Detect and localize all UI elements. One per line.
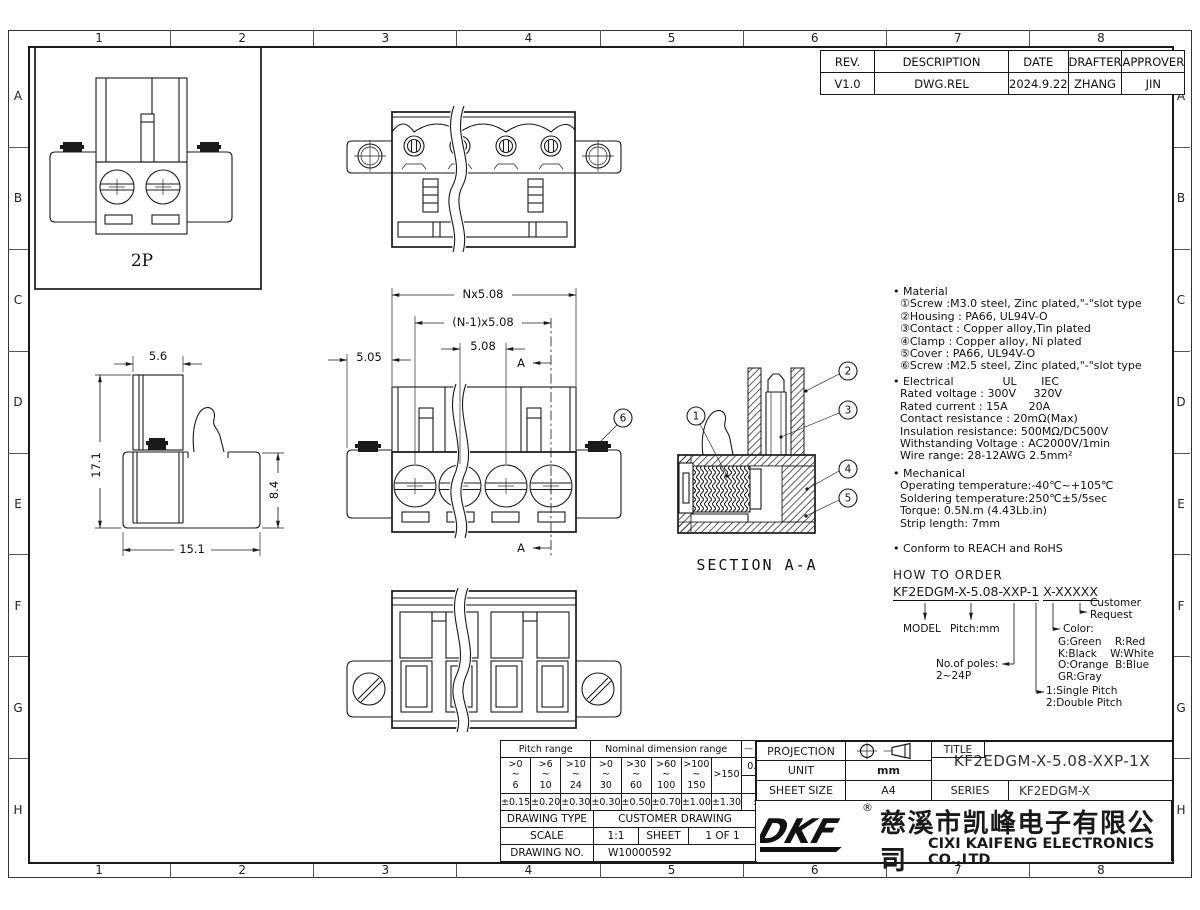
dim-body-depth: 15.1 <box>179 542 205 556</box>
order-customer-label: Customer Request <box>1090 598 1141 621</box>
order-color-label: Color: <box>1063 624 1094 636</box>
drawing-type-label: DRAWING TYPE <box>501 811 594 828</box>
svg-text:DKF: DKF <box>760 813 843 852</box>
first-angle-projection-icon <box>854 742 924 760</box>
drawing-no-label: DRAWING NO. <box>501 845 594 862</box>
poles-count-label: 2P <box>131 251 153 271</box>
balloon-1: 1 <box>693 411 700 423</box>
revision-row: V1.0 DWG.REL 2024.9.22 ZHANG JIN <box>821 73 1185 95</box>
nominal-range-header: Nominal dimension range <box>591 741 742 758</box>
description-header: DESCRIPTION <box>875 51 1009 73</box>
screw-holes-top <box>404 136 561 156</box>
order-code-model: KF2EDGM-X-5.08-XXP-1 <box>893 584 1039 601</box>
section-title: SECTION A-A <box>696 556 817 574</box>
pitch-range-1: >0 ~ 6 <box>501 758 531 794</box>
description-value: DWG.REL <box>875 73 1009 95</box>
how-to-order-title: HOW TO ORDER <box>893 568 1003 582</box>
nominal-range-2: >30 ~ 60 <box>621 758 651 794</box>
company-name-en: CIXI KAIFENG ELECTRONICS CO.,LTD <box>928 836 1171 868</box>
unit-label: UNIT <box>756 760 846 781</box>
electrical-notes: • Electrical UL IEC Rated voltage : 300V… <box>893 376 1110 463</box>
balloon-3: 3 <box>845 405 852 417</box>
nominal-tol-1: ±0.30 <box>591 794 621 811</box>
revision-header-row: REV. DESCRIPTION DATE DRAFTER APPROVER <box>821 51 1185 73</box>
sheet-size-value: A4 <box>845 780 932 801</box>
nominal-tol-5: ±1.30 <box>711 794 741 811</box>
compliance-note: • Conform to REACH and RoHS <box>893 543 1063 555</box>
drawing-type-value: CUSTOMER DRAWING <box>594 811 757 828</box>
drawing-sheet: 12345678 12345678 ABCDEFGH ABCDEFGH <box>0 0 1200 910</box>
order-pitch-type-label: 1:Single Pitch 2:Double Pitch <box>1046 686 1122 709</box>
rev-header: REV. <box>821 51 875 73</box>
order-pitch-label: Pitch:mm <box>950 624 1000 636</box>
scale-value: 1:1 <box>594 828 639 845</box>
revision-table: REV. DESCRIPTION DATE DRAFTER APPROVER V… <box>820 50 1185 95</box>
date-value: 2024.9.22 <box>1009 73 1069 95</box>
material-notes: • Material ①Screw :M3.0 steel, Zinc plat… <box>893 286 1142 373</box>
approver-value: JIN <box>1122 73 1185 95</box>
drafter-header: DRAFTER <box>1068 51 1122 73</box>
pitch-tol-2: ±0.20 <box>531 794 561 811</box>
pitch-tol-1: ±0.15 <box>501 794 531 811</box>
straightness-symbol: — <box>742 742 756 757</box>
nominal-tol-4: ±1.00 <box>681 794 711 811</box>
title-block: PROJECTION TITLE KF2EDGM-X-5.08-XXP-1X U… <box>755 740 1172 861</box>
company-block: DKF ® 慈溪市凯峰电子有限公司 CIXI KAIFENG ELECTRONI… <box>756 800 1171 861</box>
drafter-value: ZHANG <box>1068 73 1122 95</box>
drawing-no-value: W10000592 <box>594 845 757 862</box>
sheet-value: 1 OF 1 <box>689 828 757 845</box>
over-range: >150 <box>711 758 741 794</box>
dim-body-height: 8.4 <box>267 481 281 499</box>
dim-edge-offset: 5.05 <box>356 350 382 364</box>
rev-value: V1.0 <box>821 73 875 95</box>
approver-header: APPROVER <box>1122 51 1185 73</box>
projection-label: PROJECTION <box>756 741 846 761</box>
registered-mark: ® <box>862 801 873 814</box>
dim-pitch-n-minus-1: (N-1)x5.08 <box>452 315 513 329</box>
drawing-info-table: DRAWING TYPE CUSTOMER DRAWING SCALE 1:1 … <box>500 810 757 862</box>
nominal-range-3: >60 ~ 100 <box>651 758 681 794</box>
view-section: 1 2 3 4 5 SECTION A-A <box>678 362 857 574</box>
series-value: KF2EDGM-X <box>1008 780 1173 801</box>
title-label: TITLE <box>932 742 985 758</box>
pitch-range-header: Pitch range <box>501 741 591 758</box>
view-bottom <box>347 588 621 732</box>
dim-total-height: 17.1 <box>89 452 103 478</box>
order-code: KF2EDGM-X-5.08-XXP-1 X-XXXXX <box>893 584 1098 599</box>
scale-label: SCALE <box>501 828 594 845</box>
balloon-4: 4 <box>845 464 852 476</box>
title-cell: TITLE KF2EDGM-X-5.08-XXP-1X <box>931 741 1173 781</box>
view-top <box>347 106 621 252</box>
pitch-range-2: >6 ~ 10 <box>531 758 561 794</box>
tolerance-table: Pitch range Nominal dimension range — ⌒ … <box>500 740 784 811</box>
balloon-6: 6 <box>620 413 627 425</box>
dim-top-width: 5.6 <box>149 349 167 363</box>
unit-value: mm <box>845 760 932 781</box>
nominal-range-4: >100 ~ 150 <box>681 758 711 794</box>
pitch-range-3: >10 ~ 24 <box>561 758 591 794</box>
sheet-size-label: SHEET SIZE <box>756 780 846 801</box>
view-2p-front: 2P <box>35 47 261 289</box>
balloon-5: 5 <box>845 493 852 505</box>
projection-symbol-cell <box>845 741 932 761</box>
nominal-tol-2: ±0.50 <box>621 794 651 811</box>
balloon-2: 2 <box>845 366 852 378</box>
order-color-options: G:Green R:Red K:Black W:White O:Orange B… <box>1058 637 1154 683</box>
sheet-label: SHEET <box>639 828 689 845</box>
series-label: SERIES <box>931 780 1009 801</box>
dim-pitch-overall: Nx5.08 <box>462 287 503 301</box>
view-side: 5.6 17.1 8.4 15.1 <box>89 349 284 556</box>
section-arrow-top: A <box>517 356 525 370</box>
order-poles-label: No.of poles: 2~24P <box>936 659 998 682</box>
nominal-tol-3: ±0.70 <box>651 794 681 811</box>
mechanical-notes: • Mechanical Operating temperature:-40℃~… <box>893 468 1113 530</box>
view-front: 6 A A Nx5.08 (N-1)x5.08 5.08 <box>328 287 632 556</box>
date-header: DATE <box>1009 51 1069 73</box>
pitch-tol-3: ±0.30 <box>561 794 591 811</box>
terminal-screws-front <box>394 465 572 507</box>
dim-pitch: 5.08 <box>470 339 496 353</box>
section-arrow-bottom: A <box>517 541 525 555</box>
order-model-label: MODEL <box>903 624 941 636</box>
nominal-range-1: >0 ~ 30 <box>591 758 621 794</box>
